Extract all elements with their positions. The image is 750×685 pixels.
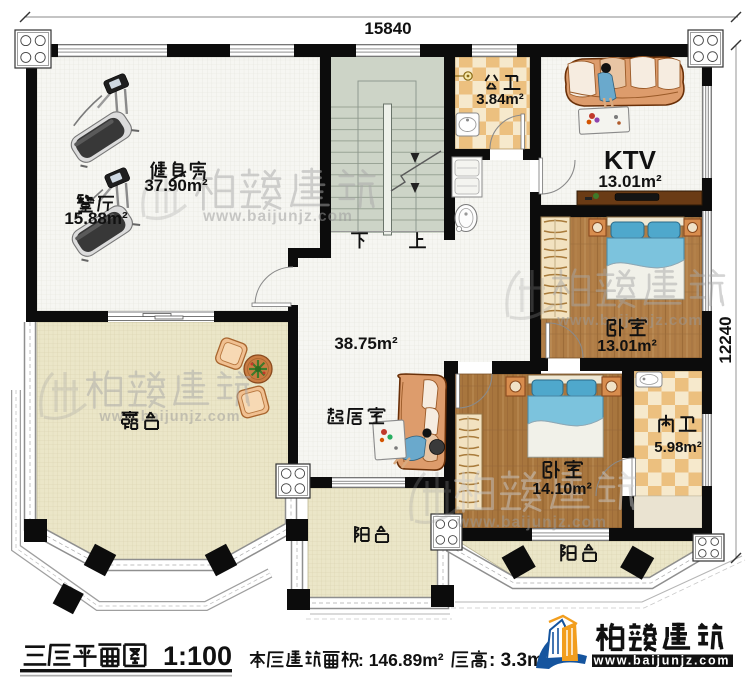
svg-text:15840: 15840: [364, 19, 411, 38]
svg-text:37.90m²: 37.90m²: [144, 176, 208, 195]
svg-text:KTV: KTV: [604, 145, 657, 175]
svg-text:www.baijunjz.com: www.baijunjz.com: [593, 654, 731, 668]
svg-text:www.baijunjz.com: www.baijunjz.com: [202, 208, 353, 225]
svg-text:5.98m²: 5.98m²: [654, 439, 702, 456]
svg-text:www.baijunjz.com: www.baijunjz.com: [456, 514, 607, 531]
svg-text:14.10m²: 14.10m²: [532, 481, 592, 498]
svg-text:: 146.89m²: : 146.89m²: [358, 650, 444, 670]
svg-text:13.01m²: 13.01m²: [597, 338, 657, 355]
svg-text:www.baijunjz.com: www.baijunjz.com: [98, 409, 240, 425]
svg-text:38.75m²: 38.75m²: [334, 334, 398, 353]
svg-text:15.88m²: 15.88m²: [64, 209, 128, 228]
svg-text:13.01m²: 13.01m²: [598, 172, 662, 191]
svg-text:12240: 12240: [716, 316, 735, 363]
svg-text:1:100: 1:100: [163, 641, 232, 671]
svg-text:3.84m²: 3.84m²: [476, 91, 524, 108]
svg-text:: 3.3m: : 3.3m: [489, 650, 544, 671]
